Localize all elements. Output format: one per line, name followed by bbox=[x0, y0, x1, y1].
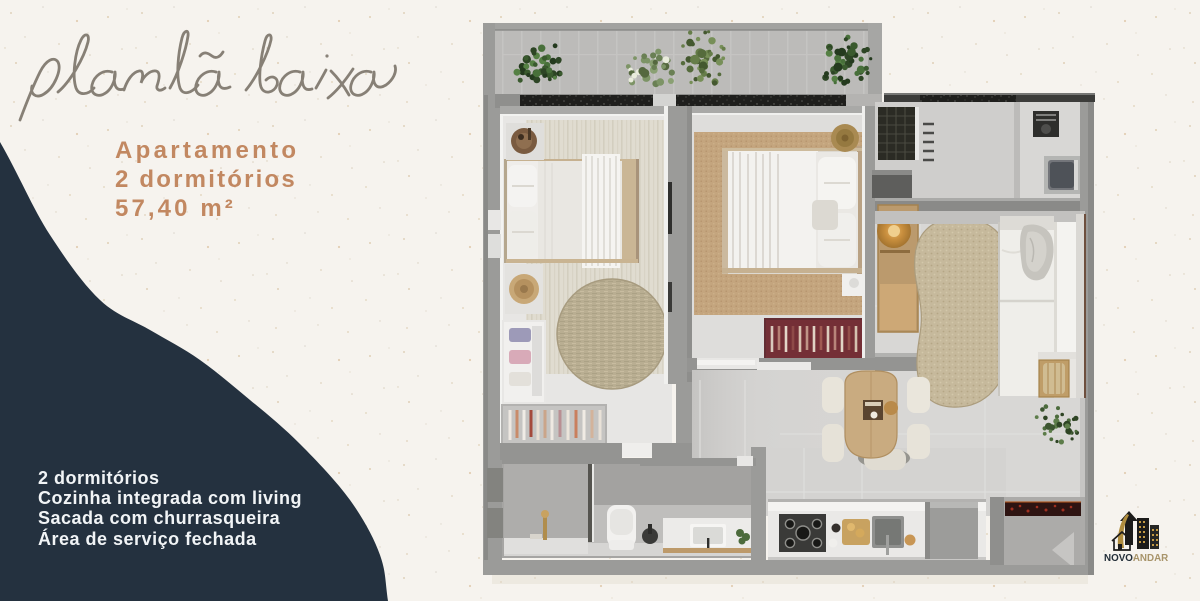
svg-text:2 dormitórios: 2 dormitórios bbox=[115, 166, 297, 193]
svg-text:Apartamento: Apartamento bbox=[115, 137, 299, 164]
svg-text:57,40 m²: 57,40 m² bbox=[115, 195, 236, 222]
svg-text:Sacada com churrasqueira: Sacada com churrasqueira bbox=[38, 508, 281, 528]
svg-text:NOVOANDAR: NOVOANDAR bbox=[1104, 553, 1168, 564]
svg-text:2 dormitórios: 2 dormitórios bbox=[38, 468, 160, 488]
svg-text:Cozinha integrada com living: Cozinha integrada com living bbox=[38, 488, 302, 508]
svg-text:Área de serviço fechada: Área de serviço fechada bbox=[38, 528, 257, 549]
